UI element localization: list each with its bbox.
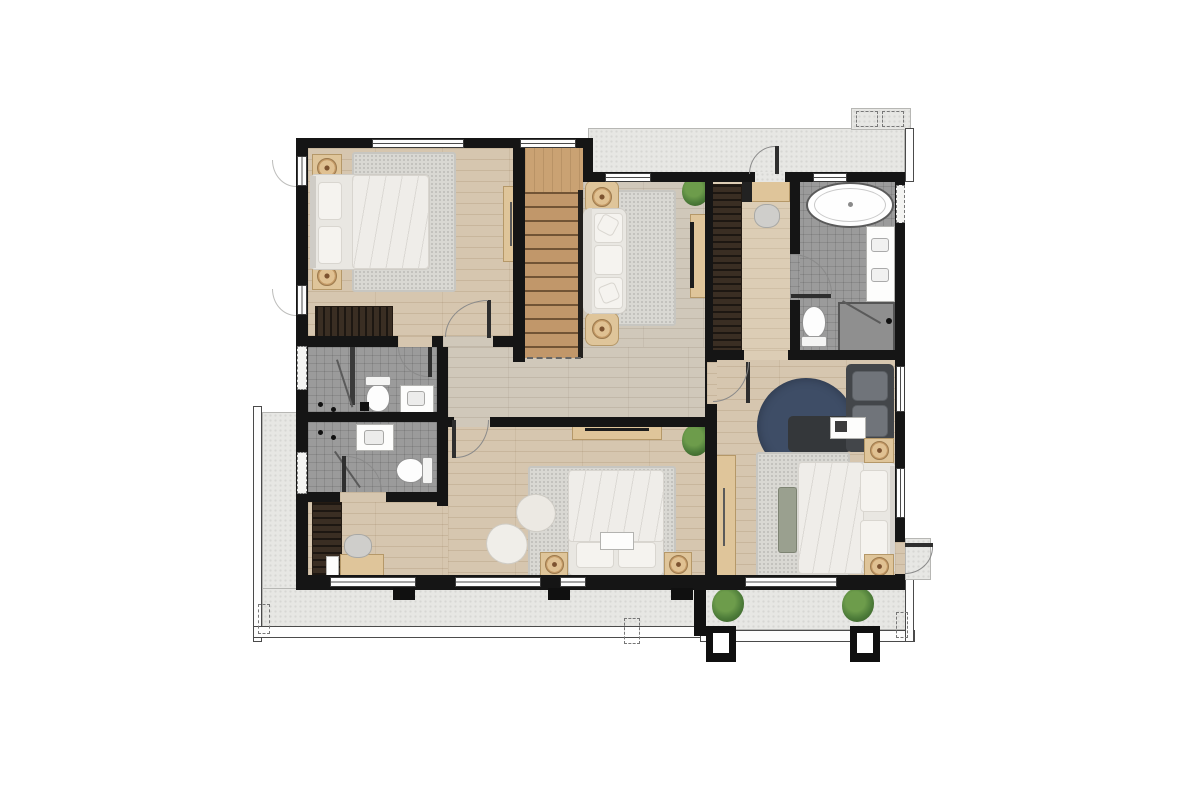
shower-partition — [350, 347, 355, 405]
window — [372, 139, 464, 148]
toilet-bowl — [366, 384, 390, 412]
doorway-closet — [744, 350, 788, 360]
family-sofa-back — [583, 208, 592, 314]
window-swing-arc — [272, 160, 296, 187]
pilaster — [393, 588, 415, 600]
louver-window — [896, 185, 905, 223]
ac-unit-outline — [882, 111, 904, 127]
bed-bench — [778, 487, 797, 553]
window — [813, 173, 847, 182]
balcony-right-railing — [905, 128, 914, 182]
terrace-left-floor — [262, 412, 298, 592]
toilet-tank — [801, 336, 827, 347]
floor-drain — [331, 435, 336, 440]
upper-balcony-floor — [588, 128, 905, 176]
window — [896, 366, 905, 412]
toilet-tank — [365, 376, 391, 386]
shower-head — [886, 318, 892, 324]
stair-treads — [525, 192, 578, 358]
vanity-sink — [871, 238, 889, 252]
window — [896, 468, 905, 518]
family-lamp — [592, 319, 612, 339]
window — [297, 285, 307, 315]
master-lamp — [870, 441, 889, 460]
wall-bath-divider — [308, 412, 448, 422]
vanity-sink — [871, 268, 889, 282]
bedroom2-duvet — [352, 175, 429, 269]
doorway-bedroom2 — [443, 336, 493, 347]
closet-wardrobe-run — [712, 184, 742, 356]
console-decor — [510, 202, 512, 246]
window — [297, 156, 307, 186]
bathtub-drain — [848, 202, 853, 207]
family-lamp — [592, 187, 612, 207]
shower-floor — [838, 302, 895, 354]
downspout-outline — [896, 612, 908, 638]
ac-unit-outline — [856, 111, 878, 127]
louver-window — [297, 452, 307, 494]
downspout-outline — [624, 618, 640, 644]
wall-master-north — [705, 350, 905, 360]
door-leaf — [775, 146, 779, 174]
stair-landing — [525, 148, 583, 192]
sink-basin — [364, 430, 384, 445]
master-wall-console — [714, 455, 736, 583]
window — [520, 139, 576, 148]
bedroom2-pillow — [318, 182, 342, 220]
toilet-bowl — [802, 306, 826, 338]
window — [455, 577, 541, 587]
doorway-bathroom3 — [340, 492, 386, 502]
window — [330, 577, 416, 587]
stair-threshold — [527, 357, 581, 359]
bedroom3-lamp — [669, 555, 688, 574]
pilaster — [671, 588, 693, 600]
balcony-column-core — [857, 633, 873, 653]
wall-closet-west — [705, 178, 713, 360]
window — [605, 173, 651, 182]
window-swing-arc — [272, 289, 296, 316]
balcony-column-core — [713, 633, 729, 653]
floor-drain — [318, 430, 323, 435]
plumbing-box — [360, 402, 369, 411]
wall-stair-west — [513, 145, 525, 362]
doorway-bathroom2 — [398, 336, 432, 347]
tv-screen — [585, 428, 649, 431]
bedroom2-pillow — [318, 226, 342, 264]
bedroom2-headboard — [310, 176, 316, 268]
toilet-bowl — [396, 458, 424, 483]
bed-tray — [600, 532, 634, 550]
floor-drain — [318, 402, 323, 407]
window — [745, 577, 837, 587]
tv-screen — [690, 222, 694, 288]
sink-basin — [407, 391, 425, 406]
doorway-master-balcony — [895, 542, 905, 574]
pilaster — [548, 588, 570, 600]
closet-stool — [754, 204, 780, 228]
sofa-cushion — [852, 371, 888, 401]
master-duvet — [798, 462, 864, 574]
sofa-cushion — [594, 245, 623, 275]
louver-window — [297, 346, 307, 390]
toilet-tank — [422, 457, 433, 484]
nook-chair — [344, 534, 372, 558]
tray-decor — [835, 421, 847, 432]
master-pillow — [860, 470, 888, 512]
bedroom3-lamp — [545, 555, 564, 574]
master-lamp — [870, 557, 889, 576]
window — [560, 577, 586, 587]
floor-plan — [0, 0, 1200, 800]
bedroom2-wardrobe — [315, 306, 393, 338]
console-decor — [723, 488, 725, 546]
door-leaf — [791, 294, 831, 298]
balcony-wall-stub — [694, 588, 706, 636]
downspout-outline — [258, 604, 270, 634]
door-leaf — [428, 347, 432, 377]
